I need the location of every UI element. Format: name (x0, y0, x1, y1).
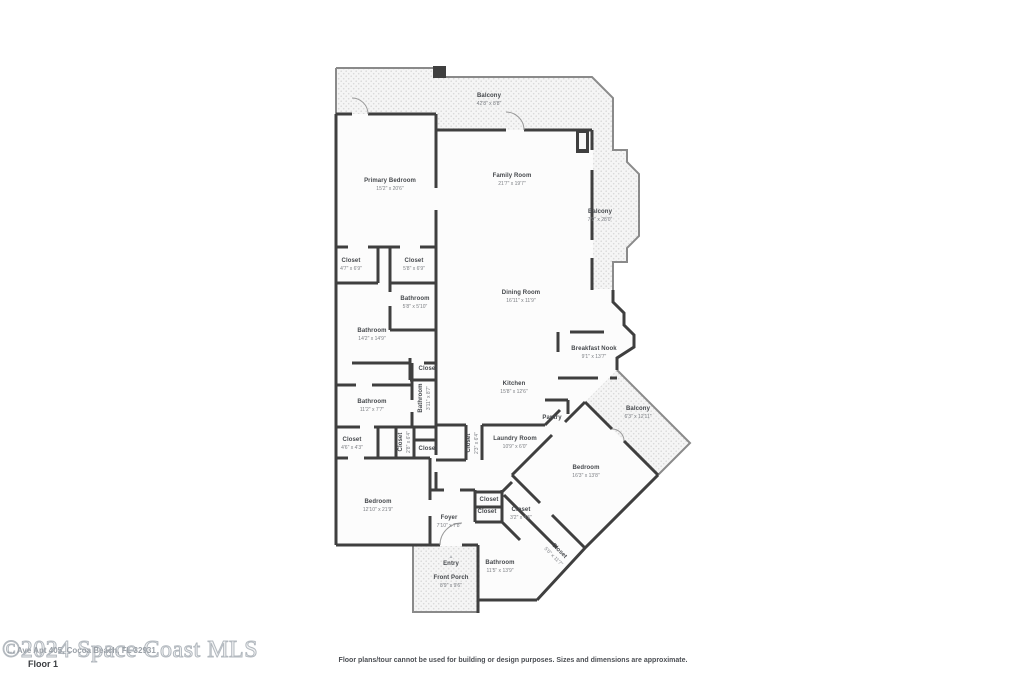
room-label-closet-foyer-3: Closet 3'2" x 4'5" (510, 507, 532, 521)
room-name: Laundry Room (493, 436, 537, 444)
room-dims: 15'8" x 12'6" (500, 389, 527, 396)
room-dims: 11'2" x 7'7" (357, 407, 386, 414)
room-name: Closet (480, 497, 499, 505)
room-label-breakfast-nook: Breakfast Nook 9'1" x 13'7" (571, 346, 616, 360)
room-name: Closet (419, 366, 438, 374)
room-label-dining-room: Dining Room 16'11" x 11'9" (502, 290, 540, 304)
room-name: Bathroom (400, 296, 429, 304)
watermark-address-text: … Ave Apt 405, Cocoa Beach, FL 32931 (7, 646, 156, 655)
room-dims: 4'7" x 6'9" (340, 266, 362, 273)
room-label-closet-hall-left: Closet 4'6" x 4'3" (341, 437, 363, 451)
room-label-closet-hall-mid: Closet 2'8" x 6'4" (398, 431, 412, 453)
room-label-bathroom-ensuite: Bathroom 5'8" x 5'10" (400, 296, 429, 310)
room-name: Primary Bedroom (364, 178, 416, 186)
room-name: Closet (478, 509, 497, 517)
room-dims: 7'9" x 28'0" (588, 217, 613, 224)
room-dims: 11'5" x 13'9" (485, 568, 514, 575)
room-dims: 5'8" x 6'9" (403, 266, 425, 273)
room-name: Front Porch (433, 575, 468, 583)
room-name: Bathroom (357, 328, 386, 336)
room-name: Closet (510, 507, 532, 515)
room-name: Pantry (542, 415, 561, 423)
room-dims: 16'11" x 11'9" (502, 298, 540, 305)
room-label-bathroom-hall: Bathroom 11'2" x 7'7" (357, 399, 386, 413)
room-dims: 21'7" x 19'7" (493, 181, 532, 188)
room-label-primary-bedroom: Primary Bedroom 15'2" x 20'6" (364, 178, 416, 192)
room-label-laundry-room: Laundry Room 10'9" x 6'0" (493, 436, 537, 450)
floorplan-drawing (0, 0, 1024, 683)
room-name: Closet (398, 431, 406, 453)
room-name: Balcony (624, 406, 651, 414)
room-label-front-porch: Front Porch 8'9" x 9'6" (433, 575, 468, 589)
room-label-closet-laundry: Closet 2'3" x 6'4" (466, 432, 480, 454)
room-label-bathroom-primary: Bathroom 14'2" x 14'9" (357, 328, 386, 342)
room-name: Kitchen (500, 381, 527, 389)
room-dims: 5'8" x 5'10" (400, 304, 429, 311)
room-name: Closet (341, 437, 363, 445)
room-label-pantry: Pantry (542, 415, 561, 423)
room-dims: 3'11" x 8'7" (426, 383, 433, 412)
room-label-foyer: Foyer 7'10" x 7'8" (437, 515, 462, 529)
room-label-closet-hall-small: Closet (419, 446, 438, 454)
room-name: Breakfast Nook (571, 346, 616, 354)
room-dims: 8'9" x 9'6" (433, 583, 468, 590)
room-label-bathroom-side: Bathroom 3'11" x 8'7" (418, 383, 432, 412)
room-dims: 42'8" x 8'8" (477, 101, 502, 108)
room-dims: 12'10" x 21'9" (363, 507, 393, 514)
room-label-closet-hall-top: Closet (419, 366, 438, 374)
room-name: Entry (443, 561, 459, 569)
room-label-closet-primary-1: Closet 4'7" x 6'9" (340, 258, 362, 272)
room-name: Closet (340, 258, 362, 266)
room-label-balcony-top: Balcony 42'8" x 8'8" (477, 93, 502, 107)
room-label-kitchen: Kitchen 15'8" x 12'6" (500, 381, 527, 395)
room-dims: 7'10" x 7'8" (437, 523, 462, 530)
room-name: Family Room (493, 173, 532, 181)
room-label-balcony-right: Balcony 7'9" x 28'0" (588, 209, 613, 223)
room-label-balcony-diamond: Balcony 6'3" x 12'11" (624, 406, 651, 420)
room-label-bedroom-right: Bedroom 16'3" x 13'8" (572, 465, 599, 479)
room-dims: 15'2" x 20'6" (364, 186, 416, 193)
room-label-closet-primary-2: Closet 5'8" x 6'9" (403, 258, 425, 272)
room-label-closet-foyer-1: Closet (480, 497, 499, 505)
room-name: Balcony (477, 93, 502, 101)
room-dims: 6'3" x 12'11" (624, 414, 651, 421)
room-name: Foyer (437, 515, 462, 523)
room-name: Bedroom (572, 465, 599, 473)
disclaimer-text: Floor plans/tour cannot be used for buil… (339, 657, 688, 664)
room-name: Bedroom (363, 499, 393, 507)
entry-arrow-icon: ▲ (443, 555, 459, 560)
room-dims: 2'8" x 6'4" (406, 431, 413, 453)
room-name: Bathroom (485, 560, 514, 568)
room-dims: 10'9" x 6'0" (493, 444, 537, 451)
room-name: Balcony (588, 209, 613, 217)
floor-label: Floor 1 (28, 659, 58, 669)
room-label-bathroom-guest: Bathroom 11'5" x 13'9" (485, 560, 514, 574)
room-name: Closet (419, 446, 438, 454)
room-name: Bathroom (357, 399, 386, 407)
room-name: Dining Room (502, 290, 540, 298)
room-label-family-room: Family Room 21'7" x 19'7" (493, 173, 532, 187)
room-dims: 16'3" x 13'8" (572, 473, 599, 480)
room-name: Closet (466, 432, 474, 454)
room-name: Closet (403, 258, 425, 266)
room-dims: 4'6" x 4'3" (341, 445, 363, 452)
room-dims: 3'2" x 4'5" (510, 515, 532, 522)
room-dims: 9'1" x 13'7" (571, 354, 616, 361)
room-dims: 14'2" x 14'9" (357, 336, 386, 343)
floorplan-page: Balcony 42'8" x 8'8" Primary Bedroom 15'… (0, 0, 1024, 683)
room-label-bedroom-left: Bedroom 12'10" x 21'9" (363, 499, 393, 513)
room-label-entry: ▲ Entry (443, 555, 459, 569)
room-name: Bathroom (418, 383, 426, 412)
room-dims: 2'3" x 6'4" (474, 432, 481, 454)
room-label-closet-foyer-2: Closet (478, 509, 497, 517)
